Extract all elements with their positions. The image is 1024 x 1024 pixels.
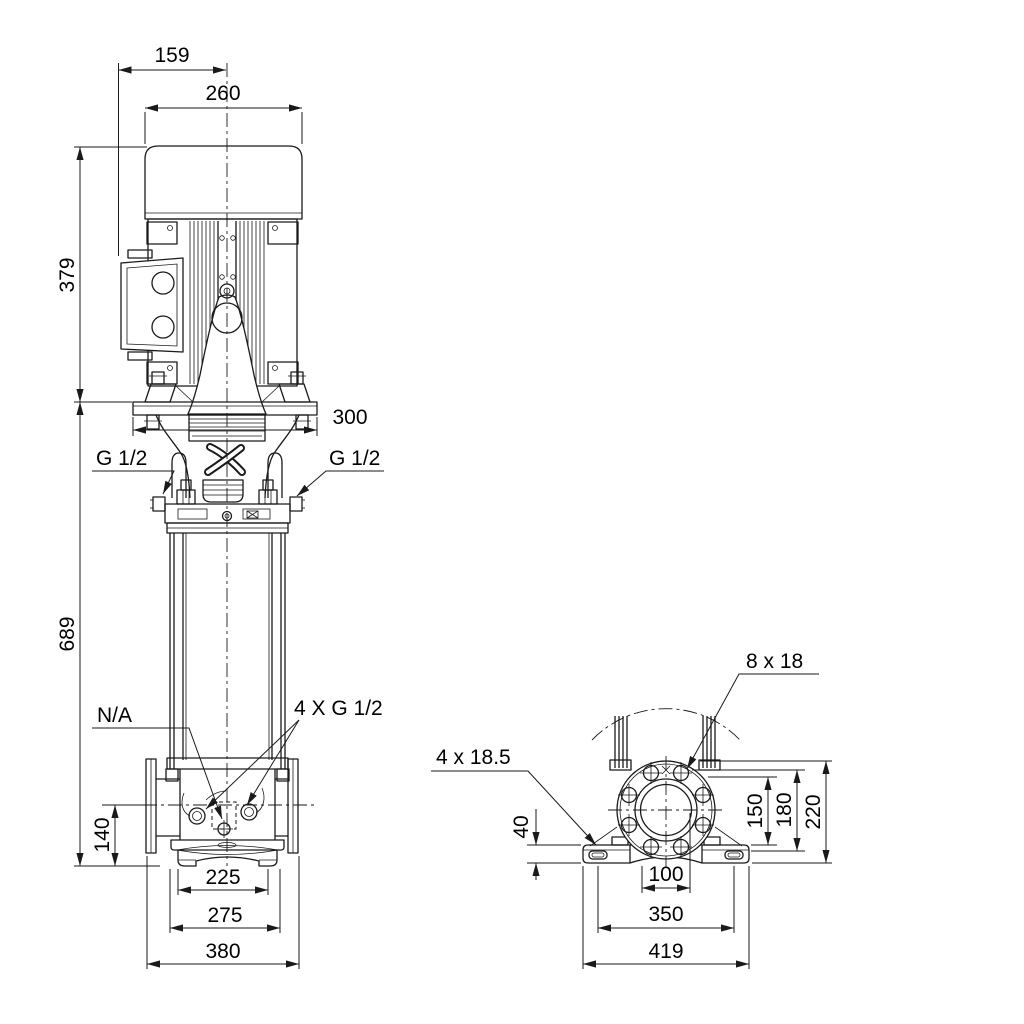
drain-and-gauge-ports	[182, 788, 264, 838]
dim-label-689: 689	[56, 616, 79, 651]
dim-label-350: 350	[648, 903, 683, 926]
dim-label-220: 220	[802, 794, 825, 829]
foot-holes-label: 4 x 18.5	[436, 746, 511, 769]
dim-label-150: 150	[744, 793, 767, 828]
dim-label-260: 260	[205, 82, 240, 105]
vent-plug-label-right: G 1/2	[329, 447, 380, 470]
dim-label-275: 275	[207, 904, 242, 927]
dim-label-379: 379	[56, 257, 79, 292]
motor-top-cover	[145, 146, 302, 219]
dim-label-380: 380	[205, 940, 240, 963]
base-plate	[171, 840, 284, 866]
dim-label-140: 140	[91, 817, 114, 852]
nameplate	[178, 509, 207, 519]
dim-label-180: 180	[773, 792, 796, 827]
vent-plug-left-boss	[153, 497, 165, 511]
gauge-plugs-label: 4 X G 1/2	[294, 697, 383, 720]
flange-holes-label: 8 x 18	[746, 650, 803, 673]
drain-plug-label: N/A	[97, 704, 132, 727]
terminal-box	[121, 250, 183, 360]
motor-stool	[156, 415, 299, 502]
vent-plug-right-boss	[290, 497, 302, 511]
dim-label-100: 100	[648, 863, 683, 886]
chamber-stack	[167, 523, 288, 769]
dim-label-225: 225	[205, 866, 240, 889]
dim-label-300: 300	[332, 406, 367, 429]
dim-label-159: 159	[154, 44, 189, 67]
vent-plug-label-left: G 1/2	[96, 447, 147, 470]
pump-dimensional-drawing: 159 260 379 300 G 1/2 G 1/2 689 N/A 4 X …	[0, 0, 1024, 1024]
coupling-window	[268, 453, 282, 498]
side-view	[583, 709, 749, 868]
pump-base-section	[146, 758, 298, 866]
technical-drawing-canvas: 159 260 379 300 G 1/2 G 1/2 689 N/A 4 X …	[0, 0, 1024, 1024]
front-view	[121, 63, 317, 866]
dim-label-419: 419	[648, 940, 683, 963]
dim-label-40: 40	[510, 815, 533, 838]
grundfos-logo-icon	[208, 447, 242, 472]
